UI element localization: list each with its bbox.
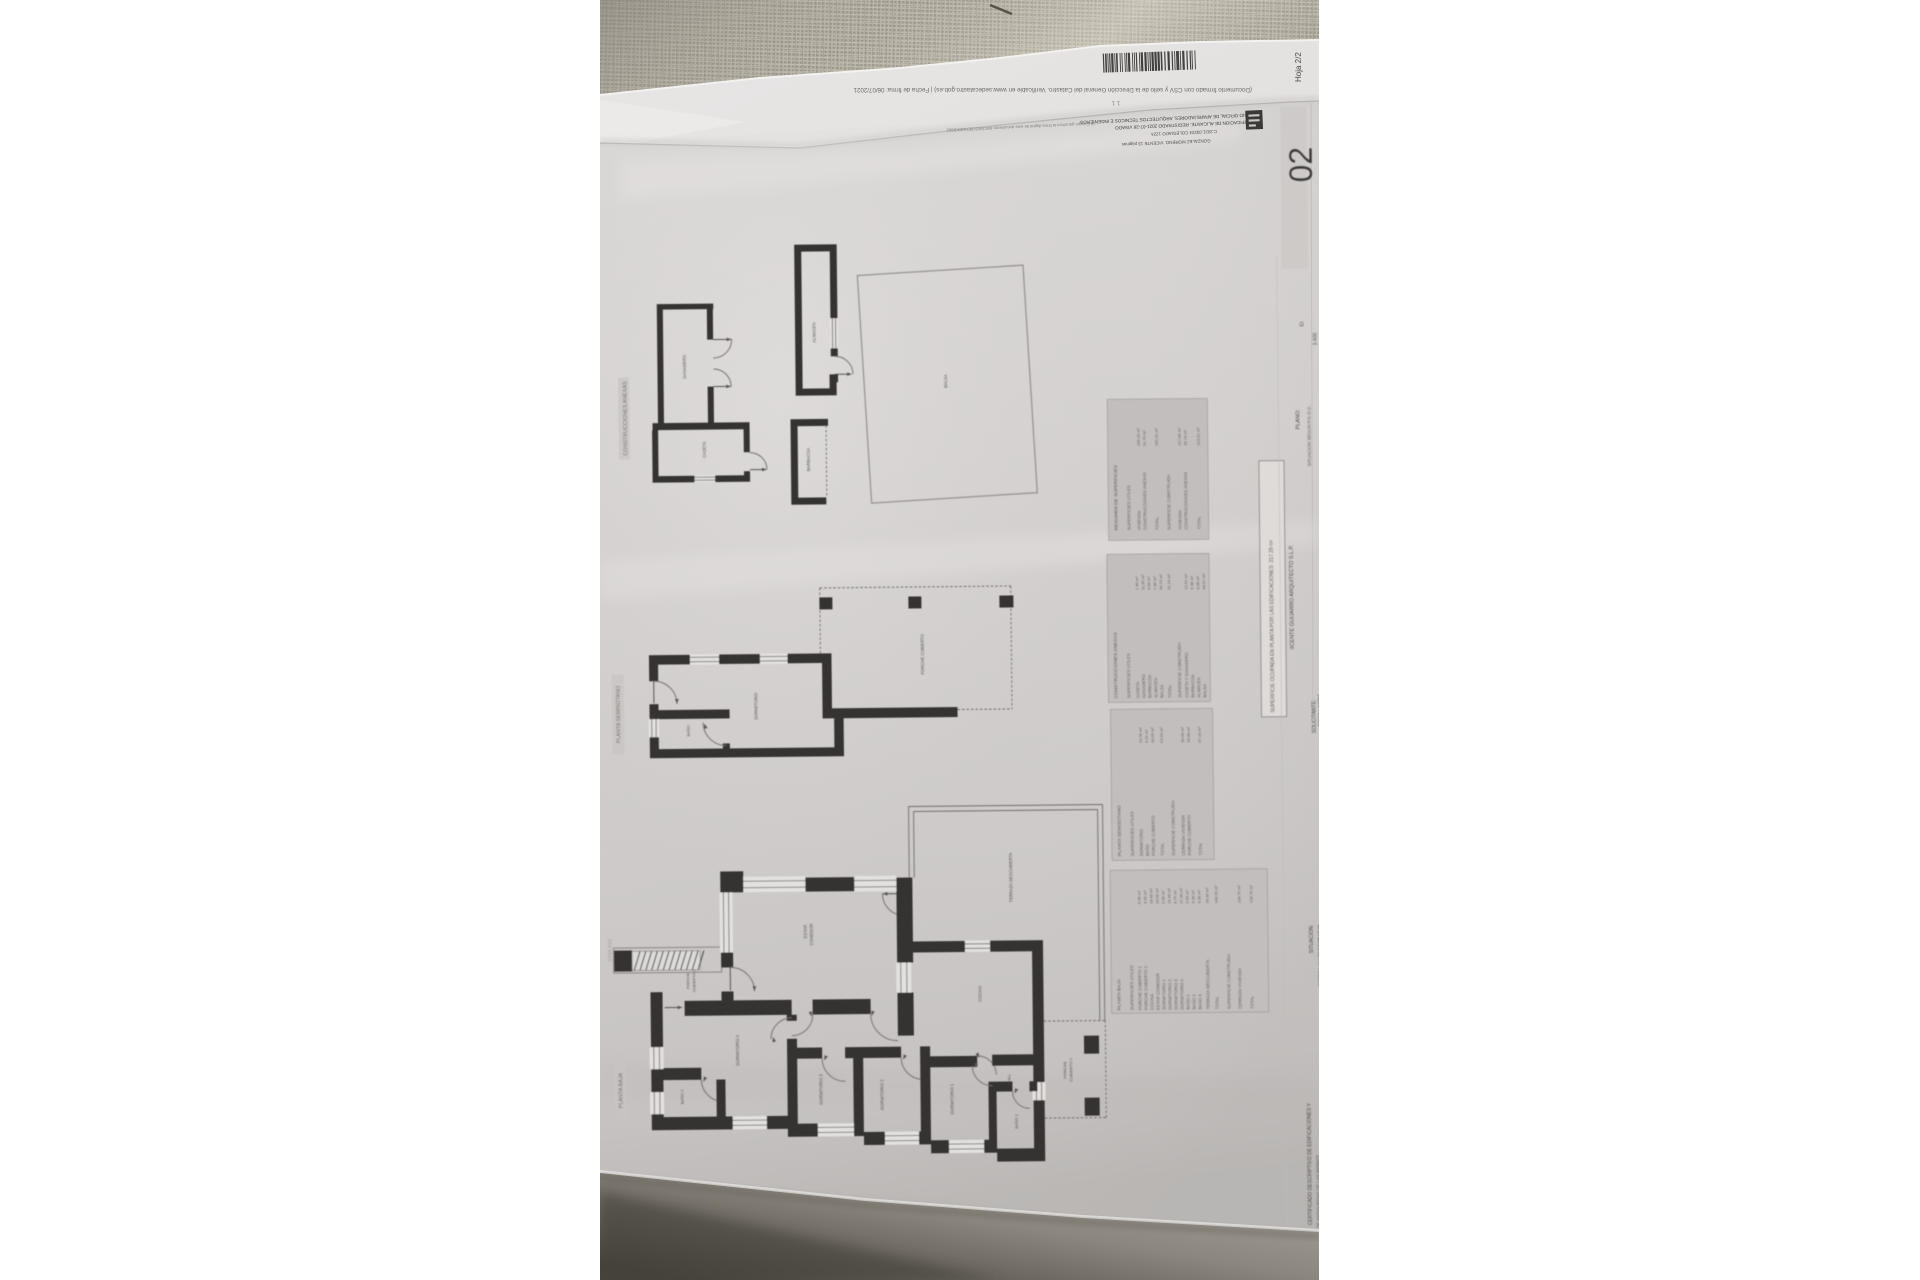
svg-text:TOTAL: TOTAL (1198, 842, 1203, 856)
svg-text:(Documento firmado con CSV y s: (Documento firmado con CSV y sello de la… (853, 86, 1252, 93)
svg-text:DORMITORIO: DORMITORIO (753, 692, 758, 720)
svg-text:1:400: 1:400 (1313, 332, 1319, 345)
svg-text:PORCHE CUBIERTO 2: PORCHE CUBIERTO 2 (1143, 965, 1148, 1010)
svg-text:TOTAL: TOTAL (1167, 684, 1172, 698)
svg-text:ALMACEN: ALMACEN (1153, 678, 1158, 698)
svg-text:281.01 m²: 281.01 m² (1154, 427, 1159, 446)
svg-text:COCINA: COCINA (977, 985, 982, 1002)
svg-text:CERRADA VIVIENDA: CERRADA VIVIENDA (1181, 814, 1186, 855)
svg-text:VIVIENDA: VIVIENDA (1136, 510, 1141, 530)
svg-text:91.16 m²: 91.16 m² (1166, 573, 1171, 590)
svg-text:ESTAR COMEDOR: ESTAR COMEDOR (1155, 973, 1160, 1010)
svg-text:TOTAL: TOTAL (1197, 516, 1202, 530)
svg-text:126.75 m²: 126.75 m² (1248, 884, 1253, 903)
svg-text:4.05 m²: 4.05 m² (1142, 890, 1147, 904)
svg-text:DORMITORIO 3: DORMITORIO 3 (818, 1073, 823, 1104)
svg-text:BALSA: BALSA (1202, 684, 1207, 698)
svg-text:30.45 m²: 30.45 m² (1180, 726, 1185, 743)
svg-text:DORMITORIO 1: DORMITORIO 1 (1161, 979, 1166, 1010)
svg-text:217.86 m²: 217.86 m² (1177, 427, 1182, 446)
svg-text:1 1: 1 1 (1111, 99, 1120, 105)
svg-text:7.86 m²: 7.86 m² (1152, 576, 1157, 590)
svg-text:BAÑO 3: BAÑO 3 (1198, 993, 1203, 1009)
svg-text:30.05 m²: 30.05 m² (1150, 727, 1155, 744)
svg-text:91.75 m²: 91.75 m² (1142, 430, 1147, 447)
svg-text:HALL: HALL (1007, 1074, 1011, 1083)
svg-text:EI: EI (1299, 322, 1305, 327)
svg-text:18.95 m²: 18.95 m² (1148, 888, 1153, 905)
svg-text:3.95 m²: 3.95 m² (1184, 889, 1189, 903)
svg-text:TERRAZA DESCUBIERTA: TERRAZA DESCUBIERTA (1205, 959, 1211, 1009)
svg-text:CERRADA VIVIENDA: CERRADA VIVIENDA (1237, 968, 1242, 1009)
svg-text:19.36 m²: 19.36 m² (1138, 727, 1143, 744)
svg-text:95.75 m²: 95.75 m² (1183, 429, 1188, 446)
svg-text:CASETA: CASETA (702, 441, 707, 458)
svg-text:ALMACEN: ALMACEN (811, 322, 816, 342)
svg-text:189.26 m²: 189.26 m² (1136, 427, 1141, 446)
svg-text:SUPERFICIE CONSTRUIDA: SUPERFICIE CONSTRUIDA (1166, 474, 1172, 530)
svg-text:67.33 m²: 67.33 m² (1197, 726, 1202, 743)
svg-text:PORCHE CUBIERTO: PORCHE CUBIERTO (920, 633, 925, 674)
svg-text:ESTAR: ESTAR (803, 925, 808, 939)
svg-text:DORMITORIO 2: DORMITORIO 2 (1167, 978, 1172, 1009)
svg-text:PLANO:: PLANO: (1295, 409, 1301, 430)
svg-text:TERRAZA DESCUBIERTA: TERRAZA DESCUBIERTA (1008, 852, 1014, 902)
svg-text:SOLICITANTE:: SOLICITANTE: (1311, 699, 1317, 733)
svg-text:CONSTRUCCIONES ANEXAS: CONSTRUCCIONES ANEXAS (1113, 632, 1120, 698)
svg-text:TOTAL: TOTAL (1155, 516, 1160, 530)
svg-text:CONSTRUCCIONES ANEXAS: CONSTRUCCIONES ANEXAS (1183, 472, 1189, 530)
svg-text:BAÑO: BAÑO (1145, 843, 1150, 856)
svg-text:SUPERFICIE CONSTRUIDA: SUPERFICIE CONSTRUIDA (1226, 954, 1232, 1010)
svg-text:GANADERO: GANADERO (682, 354, 687, 379)
svg-text:BARBACOA: BARBACOA (1190, 674, 1195, 698)
svg-text:02: 02 (1283, 147, 1319, 183)
svg-text:33.95 m²: 33.95 m² (1154, 887, 1159, 904)
svg-text:RESUMEN DE SUPERFICIES: RESUMEN DE SUPERFICIES (1113, 465, 1120, 530)
svg-text:65.75 m²: 65.75 m² (1158, 573, 1163, 590)
svg-text:15.45 m²: 15.45 m² (1166, 887, 1171, 904)
svg-text:66.57 m²: 66.57 m² (1201, 573, 1206, 590)
svg-text:SY99 4Y0: SY99 4Y0 (608, 939, 614, 962)
svg-text:DORMITORIO 2: DORMITORIO 2 (879, 1079, 884, 1110)
svg-text:SUPERFICIES UTILES: SUPERFICIES UTILES (1126, 653, 1131, 698)
svg-text:SUPERFICIES UTILES: SUPERFICIES UTILES (1130, 811, 1135, 856)
svg-text:PORCHE CUBIERTO: PORCHE CUBIERTO (1151, 815, 1156, 856)
svg-text:PORCHE: PORCHE (686, 972, 690, 989)
svg-text:BAÑO 1: BAÑO 1 (1014, 1113, 1019, 1128)
svg-text:PLANTA BAJA: PLANTA BAJA (618, 1073, 624, 1109)
svg-text:DORMITORIO 4: DORMITORIO 4 (735, 1034, 740, 1065)
svg-text:BAÑO 2: BAÑO 2 (679, 1089, 684, 1104)
svg-text:196.75 m²: 196.75 m² (1236, 884, 1241, 903)
svg-text:21.61 m²: 21.61 m² (1183, 573, 1188, 590)
svg-text:CASETA Y GANADERO: CASETA Y GANADERO (1184, 652, 1189, 698)
svg-text:PORCHE: PORCHE (1062, 1061, 1067, 1078)
svg-text:BARBACOA: BARBACOA (806, 448, 811, 472)
svg-text:TOTAL: TOTAL (1160, 842, 1165, 856)
svg-text:196.25 m²: 196.25 m² (1213, 885, 1218, 904)
svg-text:SITUACION:: SITUACION: (1309, 925, 1315, 954)
svg-text:BARBACOA: BARBACOA (1147, 675, 1152, 699)
svg-text:4.15 m²: 4.15 m² (1144, 729, 1149, 743)
svg-text:VIVIENDA: VIVIENDA (1177, 510, 1182, 530)
svg-text:BAÑO: BAÑO (686, 725, 691, 736)
svg-text:DORMITORIO 1: DORMITORIO 1 (949, 1083, 954, 1114)
svg-text:4.56 m²: 4.56 m² (1146, 576, 1151, 590)
svg-text:TOTAL: TOTAL (1215, 996, 1220, 1010)
svg-text:1.46 m²: 1.46 m² (1134, 576, 1139, 590)
svg-text:PLANTA SEMISOTANO: PLANTA SEMISOTANO (616, 686, 623, 743)
svg-text:SUPERFICIES UTILES: SUPERFICIES UTILES (1126, 485, 1131, 530)
svg-text:BALSA: BALSA (943, 374, 948, 388)
svg-text:CUBIERTO 2: CUBIERTO 2 (692, 969, 696, 992)
svg-text:PORCHE CUBIERTO: PORCHE CUBIERTO (1187, 814, 1192, 855)
svg-text:SUPERFICIE CONSTRUIDA: SUPERFICIE CONSTRUIDA (1170, 800, 1176, 856)
svg-text:PLANTA SEMISOTANO: PLANTA SEMISOTANO (1117, 805, 1124, 856)
svg-text:GANADERO: GANADERO (1141, 673, 1146, 698)
svg-text:8.66 m²: 8.66 m² (1195, 575, 1200, 589)
svg-text:27.35 m²: 27.35 m² (1178, 887, 1183, 904)
svg-text:4.35 m²: 4.35 m² (1196, 889, 1201, 903)
svg-text:PLANTA BAJA: PLANTA BAJA (1116, 978, 1122, 1010)
svg-text:53.56 m²: 53.56 m² (1159, 726, 1164, 743)
svg-text:COCINA: COCINA (1150, 993, 1155, 1010)
svg-text:TOTAL: TOTAL (1250, 995, 1255, 1009)
svg-text:9.95 m²: 9.95 m² (1160, 890, 1165, 904)
svg-text:COMEDOR: COMEDOR (809, 924, 814, 946)
svg-text:DORMITORIO: DORMITORIO (1139, 828, 1144, 856)
svg-text:8.75 m²: 8.75 m² (1172, 890, 1177, 904)
svg-text:DORMITORIO 3: DORMITORIO 3 (1173, 978, 1178, 1009)
svg-text:11.35 m²: 11.35 m² (1140, 574, 1145, 590)
svg-text:BALSA: BALSA (1159, 684, 1164, 698)
svg-text:SUPERFICIES UTILES: SUPERFICIES UTILES (1129, 965, 1134, 1010)
svg-text:CASETA: CASETA (1135, 681, 1140, 698)
svg-text:313.61 m²: 313.61 m² (1196, 427, 1201, 446)
svg-text:6.45 m²: 6.45 m² (1136, 890, 1141, 904)
svg-text:Hoja 2/2: Hoja 2/2 (1294, 52, 1303, 82)
svg-text:SUPERFICIE CONSTRUIDA: SUPERFICIE CONSTRUIDA (1177, 642, 1183, 698)
svg-text:SITUACION SEGUN P.G.O.U.: SITUACION SEGUN P.G.O.U. (1306, 406, 1312, 467)
svg-text:ALMACEN: ALMACEN (1196, 677, 1201, 697)
svg-text:36.88 m²: 36.88 m² (1186, 726, 1191, 743)
svg-text:CONSTRUCCIONES ANEXAS: CONSTRUCCIONES ANEXAS (623, 381, 630, 456)
svg-text:DORMITORIO 4: DORMITORIO 4 (1179, 978, 1184, 1009)
svg-text:PORCHE CUBIERTO 1: PORCHE CUBIERTO 1 (1137, 965, 1142, 1010)
svg-text:39.35 m²: 39.35 m² (1204, 887, 1209, 904)
svg-text:CONSTRUCCIONES ANEXAS: CONSTRUCCIONES ANEXAS (1142, 472, 1148, 530)
svg-text:/ICENTE GUIJARRO ARQUITECTO S.: /ICENTE GUIJARRO ARQUITECTO S.L.P. (1289, 544, 1296, 649)
svg-text:CUBIERTO 1: CUBIERTO 1 (1068, 1057, 1073, 1082)
svg-text:3.35 m²: 3.35 m² (1190, 889, 1195, 903)
svg-text:BAÑO 2: BAÑO 2 (1192, 994, 1197, 1010)
svg-text:5.48 m²: 5.48 m² (1189, 575, 1194, 589)
svg-text:BAÑO 1: BAÑO 1 (1186, 994, 1191, 1010)
